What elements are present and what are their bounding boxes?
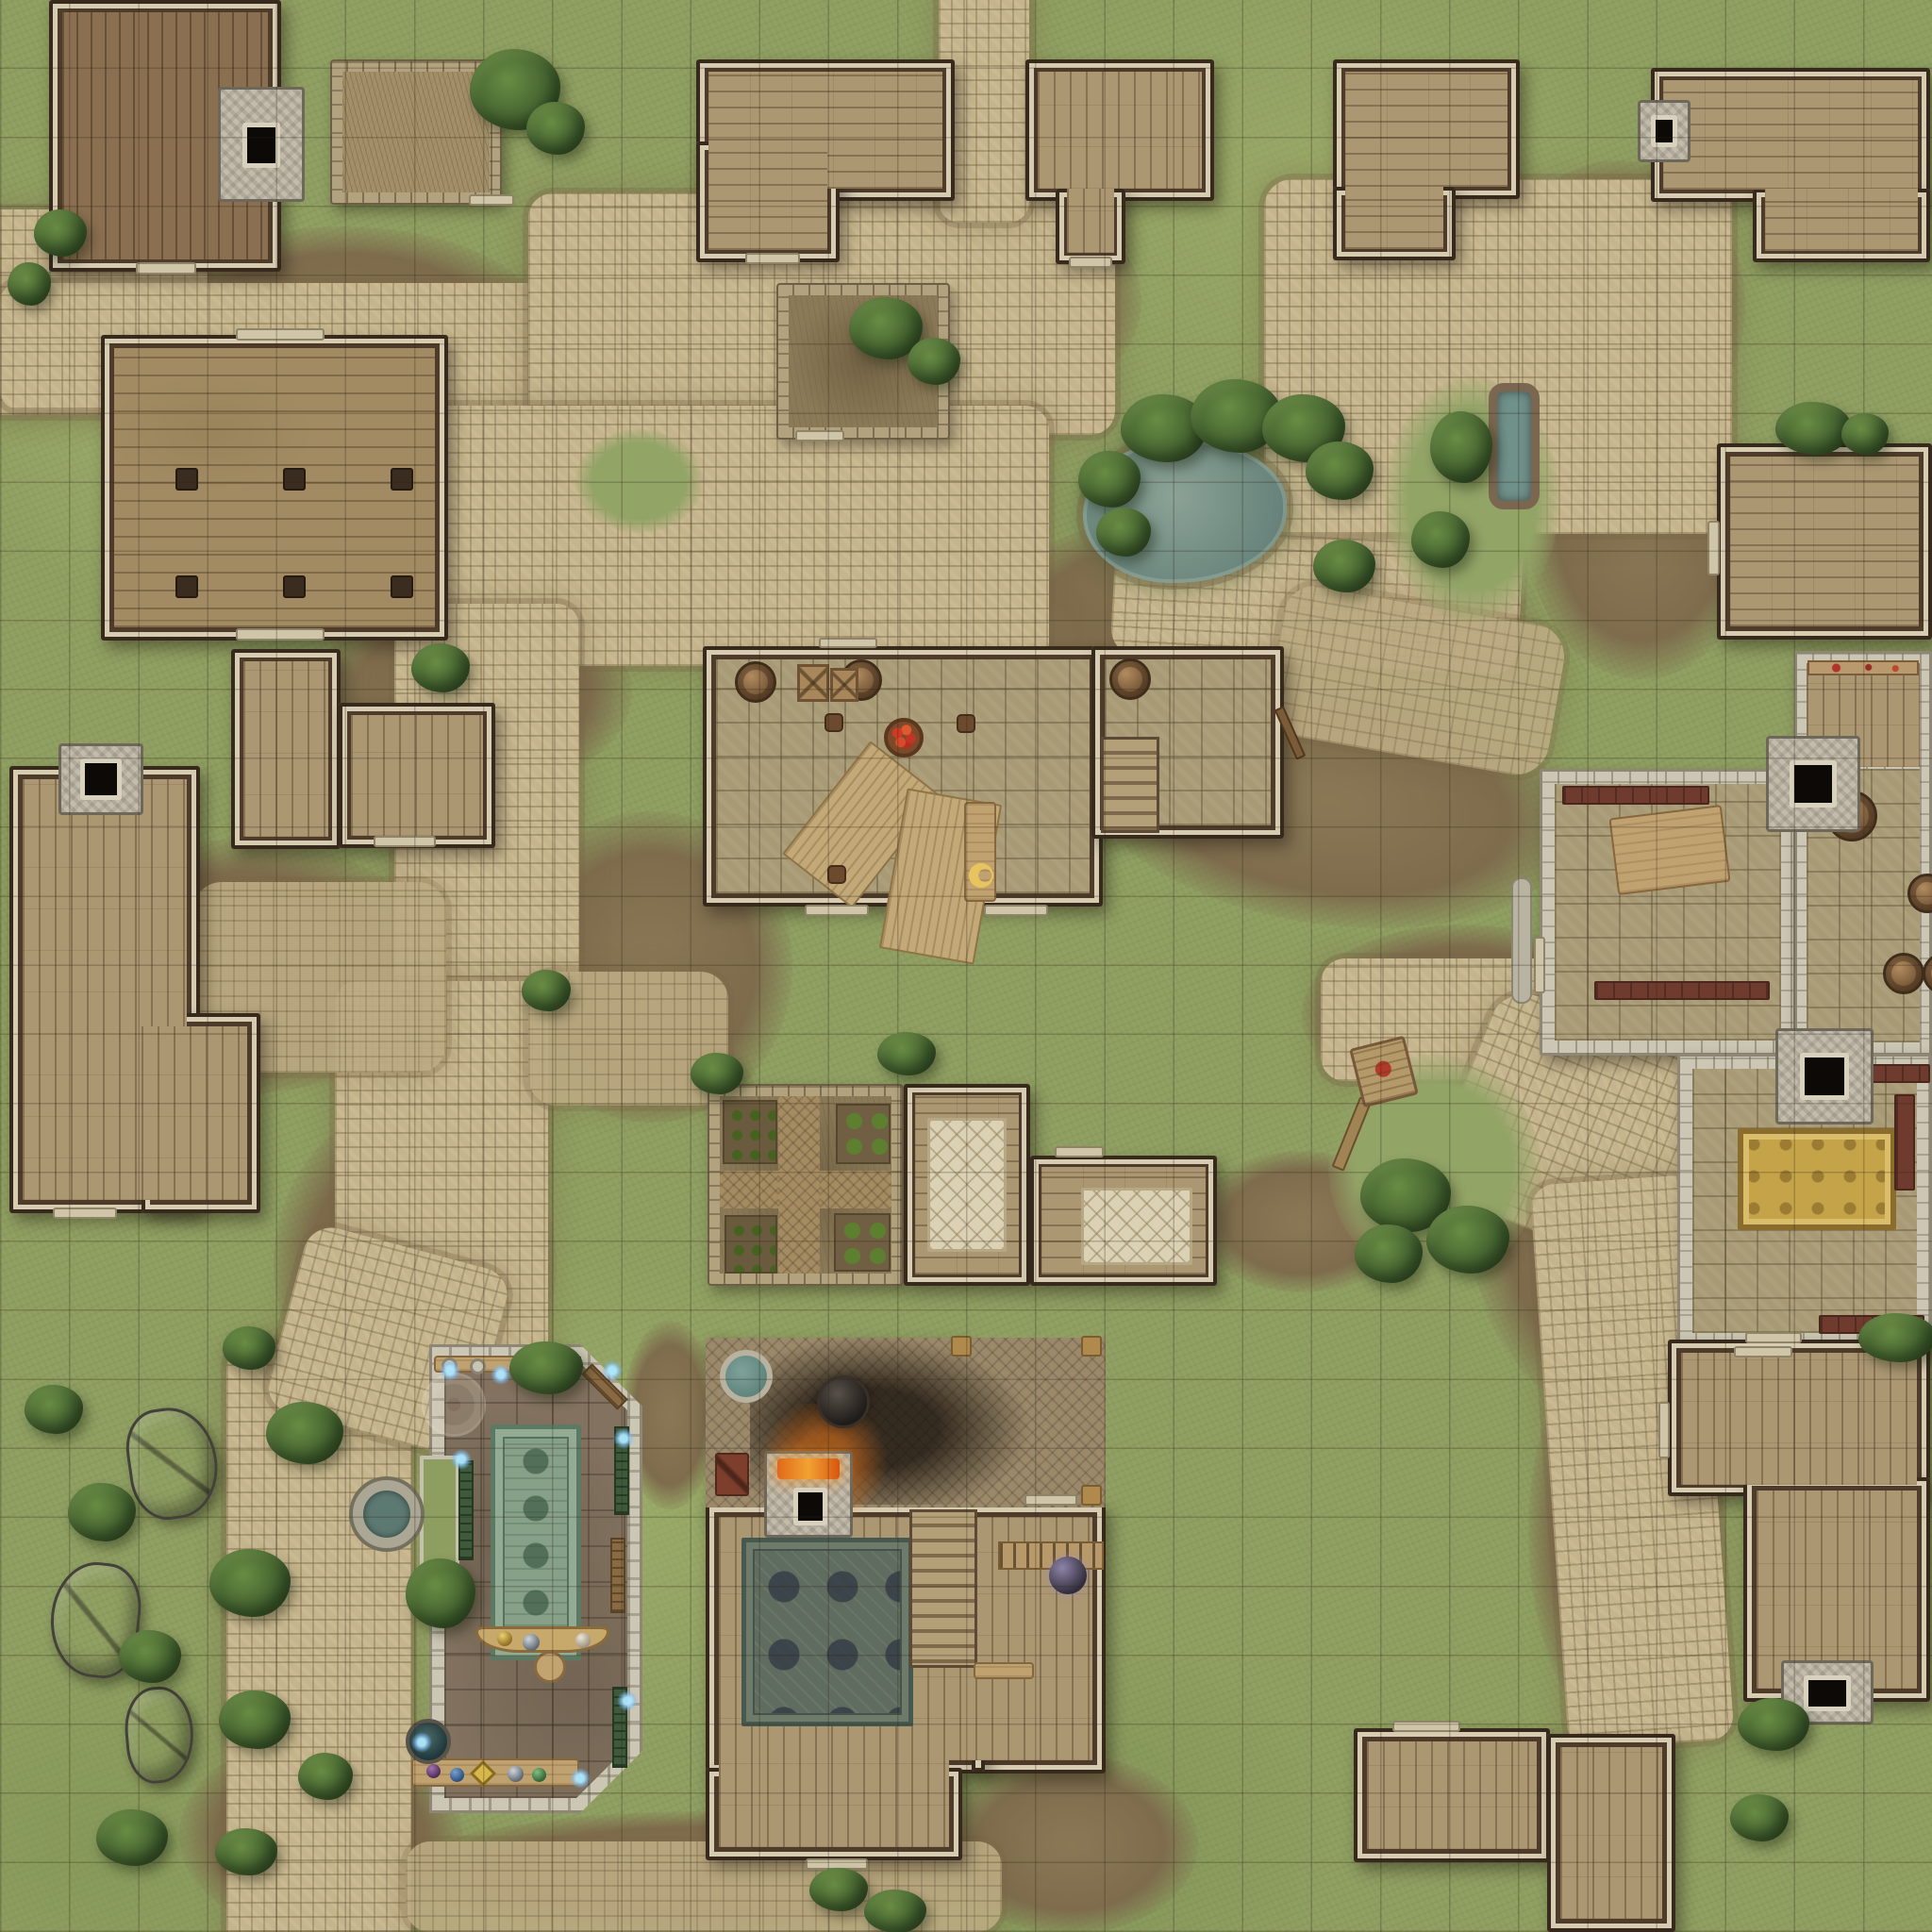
house-ne-c-floor (1663, 80, 1918, 190)
bowl (470, 1358, 486, 1374)
stone-well (353, 1480, 421, 1548)
gold-rug (1738, 1128, 1896, 1230)
barn-post (283, 575, 306, 598)
orb (497, 1631, 512, 1646)
tree (119, 1630, 181, 1683)
house-se-floor (1681, 1353, 1917, 1485)
tree (809, 1868, 868, 1911)
candle-glow (617, 1690, 638, 1711)
chimney-flue (80, 758, 122, 800)
doorstep (805, 905, 869, 916)
bench (1894, 1094, 1915, 1191)
orb (426, 1764, 441, 1778)
furnace-flue (793, 1488, 827, 1525)
lattice-rug (1081, 1188, 1192, 1265)
house-ne-c-floor (1765, 189, 1918, 251)
crop-bed (723, 1100, 777, 1164)
doorstep (1707, 521, 1720, 575)
floral-carpet (741, 1538, 913, 1726)
manor-table (1608, 805, 1730, 895)
house-ne-a-floor (1067, 189, 1114, 253)
tree (877, 1032, 936, 1075)
barn-post (283, 468, 306, 491)
stool (957, 714, 975, 733)
smith-stairs (909, 1509, 977, 1668)
barrel (735, 661, 776, 703)
tree (526, 102, 585, 155)
pen-w-b-floor (351, 715, 483, 836)
gate-step (795, 430, 844, 441)
doorstep (1392, 1721, 1460, 1732)
tree (411, 643, 470, 692)
patio-post (1081, 1336, 1102, 1357)
teal-runner-rug (491, 1424, 581, 1660)
candle-glow (491, 1364, 511, 1385)
tree (1096, 508, 1151, 557)
pen-w-a-floor (243, 661, 328, 837)
candle-glow (440, 1360, 460, 1381)
chimney-flue (1800, 1053, 1849, 1100)
bench (974, 1662, 1034, 1679)
moon-token (969, 863, 993, 888)
butcher-counter (1807, 660, 1919, 675)
pen-s-b-floor (1560, 1747, 1662, 1919)
crop-bed (724, 1215, 777, 1274)
rune-boulder (121, 1402, 225, 1524)
tree (1841, 413, 1889, 455)
barn-door (236, 328, 325, 341)
tree (298, 1753, 353, 1800)
house-n-floor (708, 142, 827, 250)
tree (864, 1890, 926, 1932)
candle-glow (411, 1732, 432, 1753)
doorstep (819, 638, 877, 648)
orb (523, 1634, 540, 1651)
house-se-floor (1757, 1491, 1917, 1689)
chimney-flue (1790, 760, 1837, 808)
doorstep (374, 836, 436, 847)
gate-step (469, 194, 514, 206)
crate (830, 668, 858, 702)
orb (532, 1768, 546, 1782)
orb (575, 1633, 591, 1648)
candle-glow (613, 1428, 634, 1449)
barn-post (391, 575, 413, 598)
house-ne-a-floor (1038, 72, 1202, 189)
tree (1730, 1794, 1789, 1841)
shelf (610, 1538, 625, 1613)
barn-west-floor (114, 348, 435, 627)
crop-bed (836, 1104, 891, 1164)
round-stool (534, 1651, 566, 1683)
orb (508, 1766, 524, 1782)
house-west-floor (142, 1026, 247, 1200)
garden-path (778, 1096, 820, 1274)
tavern-stairs (1101, 737, 1159, 833)
tree (25, 1385, 83, 1434)
house-ne-b-floor (1345, 187, 1443, 249)
patio-post (951, 1336, 972, 1357)
dark-orb (1049, 1557, 1087, 1594)
pen-s-a-floor (1367, 1741, 1537, 1849)
tree (266, 1402, 343, 1464)
doorstep (745, 253, 800, 264)
tree (908, 338, 960, 385)
manor-north-pen-floor (1730, 457, 1919, 626)
cauldron (820, 1378, 867, 1425)
barn-post (175, 575, 198, 598)
bookshelf (458, 1460, 474, 1560)
barn-post (391, 468, 413, 491)
stool (824, 713, 843, 732)
anvil-stand (715, 1453, 749, 1496)
temple-bush (406, 1558, 475, 1628)
battle-map (0, 0, 1932, 1932)
pen-nw-floor (342, 72, 490, 192)
tree (691, 1053, 743, 1094)
doorstep (1534, 937, 1545, 993)
tree (522, 970, 571, 1011)
tree (215, 1828, 277, 1875)
doorstep (984, 905, 1048, 916)
doorstep (1024, 1494, 1077, 1506)
doorstep (1734, 1346, 1792, 1357)
rune-boulder (122, 1684, 198, 1786)
doorstep (136, 262, 196, 275)
engraved-circle (422, 1373, 486, 1437)
forge-fire (777, 1458, 840, 1479)
tree (1738, 1698, 1809, 1751)
tree (509, 1341, 583, 1394)
candle-glow (570, 1768, 591, 1789)
tree (209, 1549, 291, 1617)
tree (1775, 402, 1851, 455)
tree (1306, 441, 1374, 500)
doorstep (53, 1207, 117, 1219)
tree (1078, 451, 1141, 508)
tree (1313, 540, 1375, 592)
chimney-flue (1804, 1675, 1851, 1711)
orb (450, 1768, 464, 1782)
barrel (1109, 658, 1151, 700)
crop-bed (834, 1213, 891, 1272)
tree (1355, 1224, 1423, 1283)
doorstep (1745, 1332, 1802, 1343)
water-trough (1489, 383, 1540, 509)
doorstep (1055, 1146, 1104, 1158)
lattice-rug (927, 1118, 1007, 1252)
tree (1430, 411, 1492, 483)
stool (827, 865, 846, 884)
doorstep (1069, 257, 1112, 268)
grass-wedge (575, 429, 703, 533)
smith-house-floor (719, 1753, 949, 1847)
tree (34, 209, 87, 257)
tree (1858, 1313, 1932, 1362)
tree (1426, 1206, 1509, 1274)
bench (1562, 786, 1709, 805)
bench (1594, 981, 1770, 1000)
chimney-flue (242, 123, 280, 168)
outdoor-bench (1511, 877, 1532, 1004)
apple-basket (884, 718, 924, 758)
tree (223, 1326, 275, 1370)
tree (8, 262, 51, 306)
chimney-flue (1651, 115, 1677, 147)
candle-glow (451, 1449, 472, 1470)
candle-glow (602, 1360, 623, 1381)
tree (68, 1483, 136, 1541)
house-ne-b-floor (1345, 72, 1507, 187)
doorstep (1658, 1402, 1670, 1458)
barn-door (236, 628, 325, 641)
tree (219, 1690, 291, 1749)
patio-post (1081, 1485, 1102, 1506)
barrel (1883, 953, 1924, 994)
barn-post (175, 468, 198, 491)
tree (96, 1809, 168, 1866)
tree (1411, 511, 1470, 568)
water-basin (720, 1350, 773, 1403)
crate (797, 664, 829, 702)
